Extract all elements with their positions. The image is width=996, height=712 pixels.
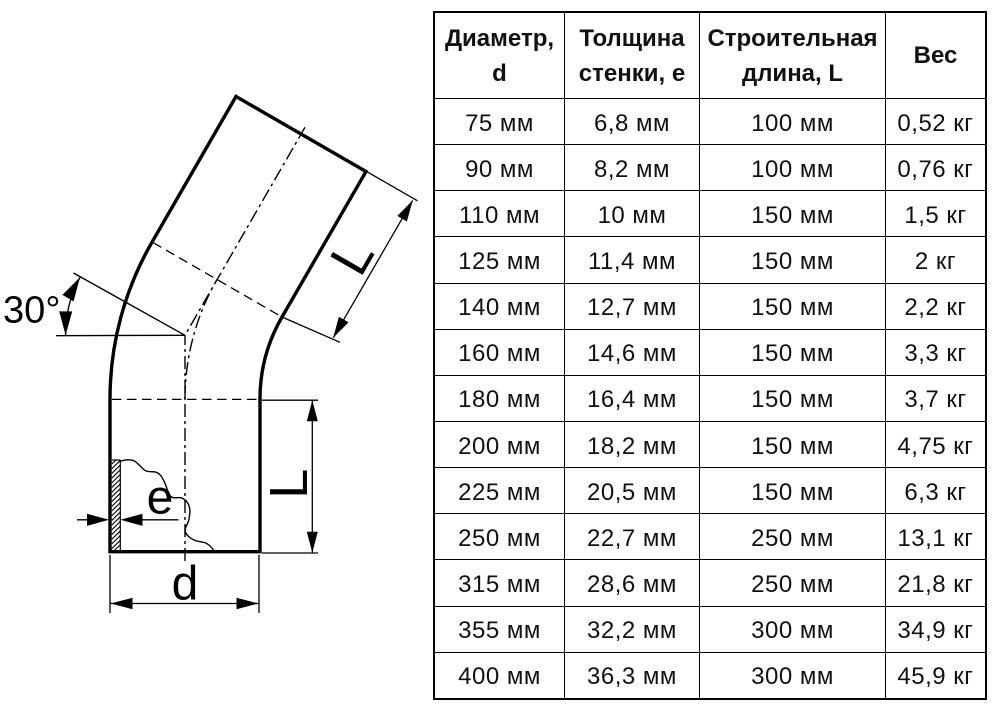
svg-text:L: L bbox=[259, 469, 319, 499]
svg-text:d: d bbox=[172, 558, 199, 611]
svg-text:e: e bbox=[147, 471, 174, 524]
svg-text:30°: 30° bbox=[3, 290, 60, 332]
svg-text:L: L bbox=[319, 229, 386, 285]
